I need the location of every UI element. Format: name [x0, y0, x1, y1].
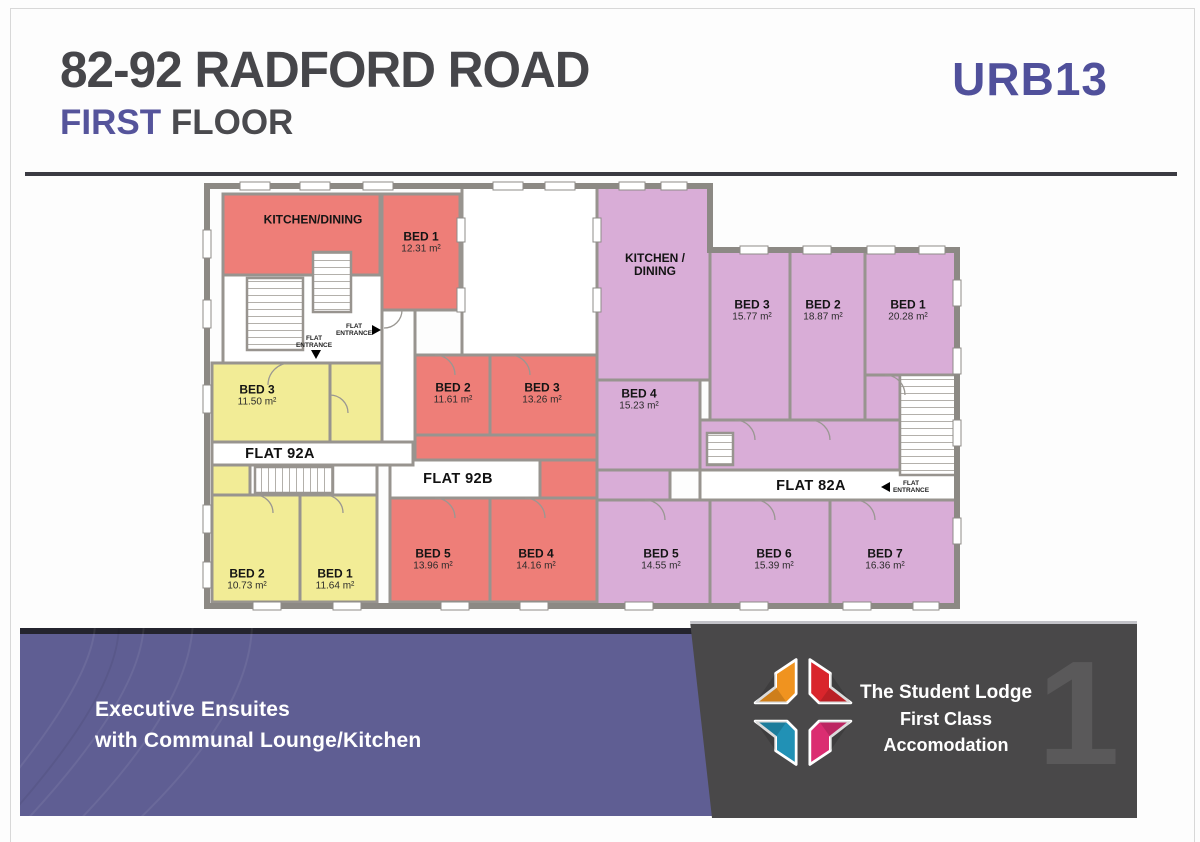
floor-subtitle: FIRST FLOOR: [60, 103, 1140, 143]
stairs-upper-left: [313, 252, 351, 312]
entrance-label-92a: FLAT ENTRANCE: [293, 335, 335, 349]
tagline-line2: with Communal Lounge/Kitchen: [95, 725, 421, 756]
ensuite-pods-92b: [415, 435, 597, 460]
label-bed6-82a: BED 615.39 m²: [754, 548, 793, 573]
label-bed2-82a: BED 218.87 m²: [803, 299, 842, 324]
header: 82-92 RADFORD ROAD FIRST FLOOR URB13: [60, 40, 1140, 160]
page: { "header": { "title": "82-92 RADFORD RO…: [0, 0, 1200, 841]
stairs-92a: [255, 467, 333, 493]
tagline-line1: Executive Ensuites: [95, 694, 421, 725]
label-bed3-82a: BED 315.77 m²: [732, 299, 771, 324]
label-bed2-92a: BED 210.73 m²: [227, 568, 266, 593]
brand-logo-text: URB13: [952, 52, 1108, 106]
entrance-label-82a: FLAT ENTRANCE: [890, 480, 932, 494]
label-bed1-82a: BED 120.28 m²: [888, 299, 927, 324]
label-bed7-82a: BED 716.36 m²: [865, 548, 904, 573]
floor-subtitle-rest: FLOOR: [161, 103, 293, 142]
room-kitchen-82a: [597, 186, 710, 380]
label-flat-82a: FLAT 82A: [776, 478, 846, 494]
flat-entrance-arrow-right-icon: [372, 325, 381, 335]
label-flat-92b: FLAT 92B: [423, 471, 493, 487]
label-bed4-82a: BED 415.23 m²: [619, 388, 658, 413]
entrance-label-92b-side: FLAT ENTRANCE: [333, 323, 375, 337]
label-flat-92a: FLAT 92A: [245, 446, 315, 462]
lodge-sub1: First Class: [842, 706, 1050, 732]
label-bed4-92b: BED 414.16 m²: [516, 548, 555, 573]
stairs-82a: [900, 375, 957, 475]
corridor-column-92b: [382, 310, 415, 460]
room-bed2-82a: [790, 250, 865, 420]
floor-subtitle-accent: FIRST: [60, 103, 161, 142]
label-bed1-92b: BED 112.31 m²: [401, 231, 440, 256]
lodge-brand-text: The Student Lodge First Class Accomodati…: [842, 679, 1050, 758]
label-bed5-82a: BED 514.55 m²: [641, 548, 680, 573]
brand-panel: 1 The Student Lodge First Class Accomoda…: [690, 621, 1137, 818]
pod-92a: [212, 465, 250, 495]
lodge-sub2: Accomodation: [842, 732, 1050, 758]
label-bed2-92b: BED 211.61 m²: [434, 382, 473, 407]
lightwell-room: [462, 186, 597, 355]
flat-entrance-arrow-down-icon: [311, 350, 321, 359]
room-bed3-82a: [710, 250, 790, 420]
page-title: 82-92 RADFORD ROAD: [60, 40, 1108, 99]
label-bed5-92b: BED 513.96 m²: [413, 548, 452, 573]
floorplan-svg: [195, 180, 965, 612]
tagline: Executive Ensuites with Communal Lounge/…: [95, 694, 421, 756]
room-kitchen-92b: [223, 194, 380, 275]
pod-82a: [865, 375, 900, 420]
label-kitchen-82a: KITCHEN / DINING: [609, 252, 701, 278]
flat-entrance-arrow-left-icon: [881, 482, 890, 492]
label-kitchen-92b: KITCHEN/DINING: [264, 214, 363, 227]
ensuite-pod-right-92b: [540, 460, 597, 498]
floorplan: KITCHEN/DINING BED 112.31 m² BED 211.61 …: [195, 180, 965, 612]
header-divider: [25, 172, 1177, 176]
label-bed3-92b: BED 313.26 m²: [522, 382, 561, 407]
pod-left-82a: [597, 470, 670, 500]
lodge-name: The Student Lodge: [842, 679, 1050, 706]
label-bed3-92a: BED 311.50 m²: [238, 384, 277, 409]
label-bed1-92a: BED 111.64 m²: [316, 568, 355, 593]
stairs-small-82a: [707, 433, 733, 465]
